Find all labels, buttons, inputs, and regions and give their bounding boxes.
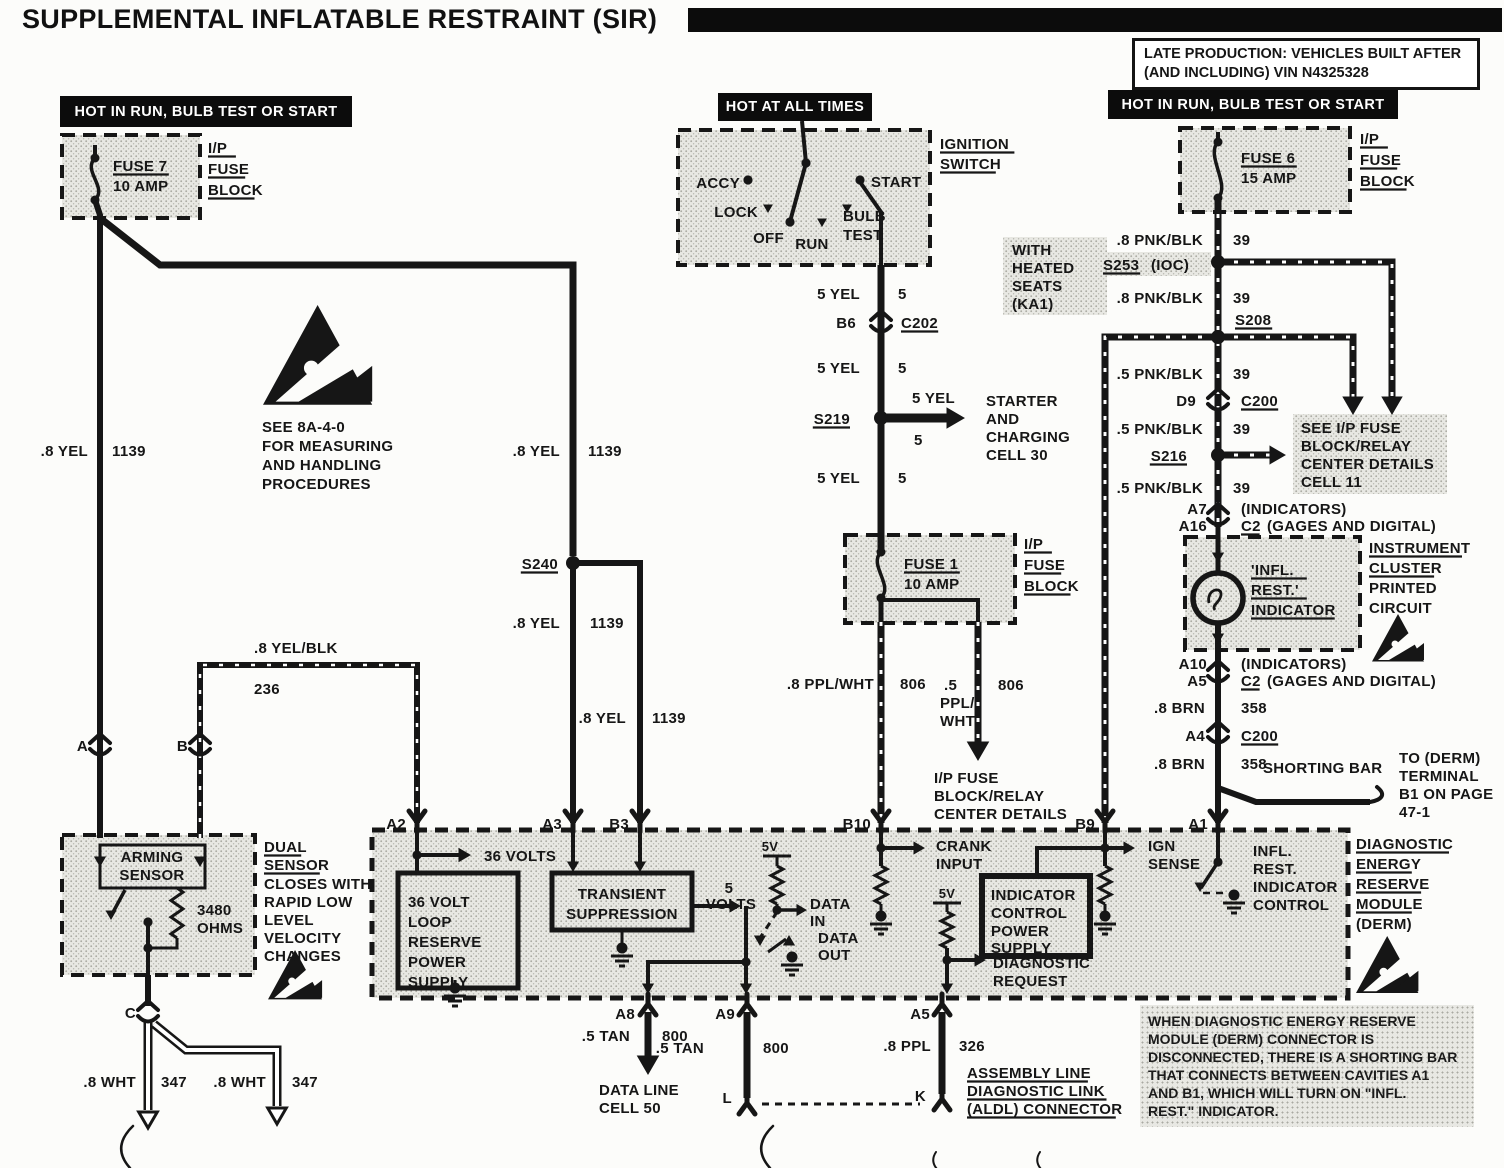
banner-hot-in-run-left: HOT IN RUN, BULB TEST OR START	[60, 96, 352, 127]
banner-hot-in-run-right: HOT IN RUN, BULB TEST OR START	[1108, 90, 1398, 119]
diagram-label: C	[125, 1005, 136, 1022]
diagram-label: SUPPRESSION	[566, 906, 678, 923]
diagram-label: RAPID LOW	[264, 894, 353, 911]
diagram-label: CRANK	[936, 838, 992, 855]
diagram-label: A5	[1187, 673, 1207, 690]
junction-dot	[1100, 843, 1109, 852]
diagram-label: 1139	[652, 710, 686, 727]
diagram-label: C2	[1241, 518, 1261, 535]
diagram-label: HEATED	[1012, 260, 1074, 277]
diagram-label: SHORTING BAR	[1263, 760, 1382, 777]
diagram-label: 5	[914, 432, 923, 449]
diagram-label: LOCK	[714, 204, 758, 221]
diagram-label: .8 PNK/BLK	[1117, 232, 1203, 249]
diagram-label: 236	[254, 681, 280, 698]
diagram-label: CONTROL	[991, 905, 1067, 922]
diagram-label: SWITCH	[940, 156, 1001, 173]
diagram-label: INPUT	[936, 856, 983, 873]
diagram-label: B3	[609, 816, 629, 833]
diagram-label: .8 YEL	[513, 615, 560, 632]
diagram-label: STARTER	[986, 393, 1058, 410]
diagram-label: C202	[901, 315, 938, 332]
diagram-label: SENSOR	[119, 867, 184, 884]
diagram-label: 326	[959, 1038, 985, 1055]
diagram-label: LOOP	[408, 914, 452, 931]
dashed-component-box	[62, 135, 200, 218]
diagram-label: REST.'	[1251, 582, 1299, 599]
diagram-label: AND	[986, 411, 1019, 428]
diagram-label: CIRCUIT	[1369, 600, 1432, 617]
diagram-label: 5	[898, 470, 907, 487]
diagram-label: 5 YEL	[912, 390, 955, 407]
diagram-label: OFF	[753, 230, 784, 247]
diagram-label: WHT	[940, 713, 975, 730]
diagram-label: TRANSIENT	[578, 886, 667, 903]
diagram-label: CHANGES	[264, 948, 341, 965]
diagram-label: (INDICATORS)	[1241, 656, 1347, 673]
diagram-label: (INDICATORS)	[1241, 501, 1347, 518]
diagram-label: CLUSTER	[1369, 560, 1442, 577]
diagram-label: .5 PNK/BLK	[1117, 421, 1203, 438]
diagram-label: D9	[1176, 393, 1196, 410]
diagram-label: ACCY	[696, 175, 740, 192]
diagram-label: 806	[998, 677, 1024, 694]
diagram-label: A4	[1185, 728, 1205, 745]
diagram-label: PPL/	[940, 695, 975, 712]
diagram-label: TEST	[843, 227, 883, 244]
diagram-label: S216	[1151, 448, 1187, 465]
diagram-label: CHARGING	[986, 429, 1070, 446]
diagram-label: (GAGES AND DIGITAL)	[1267, 518, 1436, 535]
diagram-label: FUSE	[208, 161, 249, 178]
diagram-label: I/P	[208, 140, 227, 157]
diagram-label: 5 YEL	[817, 286, 860, 303]
diagram-label: BLOCK	[208, 182, 263, 199]
diagram-label: S240	[522, 556, 558, 573]
diagram-label: DIAGNOSTIC	[993, 955, 1090, 972]
junction-dot	[143, 943, 152, 952]
diagram-label: .5 TAN	[582, 1028, 630, 1045]
diagram-part	[304, 361, 319, 376]
diagram-label: AND HANDLING	[262, 457, 381, 474]
diagram-label: DATA	[810, 896, 851, 913]
diagram-label: ASSEMBLY LINE	[967, 1065, 1091, 1082]
diagram-label: 39	[1233, 421, 1250, 438]
diagram-label: B6	[836, 315, 856, 332]
splice-dot	[874, 411, 888, 425]
diagram-label: A16	[1179, 518, 1207, 535]
diagram-label: (IOC)	[1151, 257, 1189, 274]
splice-dot	[1211, 255, 1225, 269]
diagram-label: .8 YEL	[579, 710, 626, 727]
diagram-label: 1139	[112, 443, 146, 460]
diagram-label: 5	[898, 286, 907, 303]
diagram-label: A5	[910, 1006, 930, 1023]
diagram-label: C2	[1241, 673, 1261, 690]
diagram-label: .5 PNK/BLK	[1117, 480, 1203, 497]
diagram-label: RESERVE	[408, 934, 482, 951]
diagram-label: .8 YEL	[513, 443, 560, 460]
diagram-label: INDICATOR	[1251, 602, 1336, 619]
diagram-part	[1100, 911, 1111, 922]
diagram-label: A2	[386, 816, 406, 833]
diagram-label: FUSE 6	[1241, 150, 1295, 167]
diagram-label: A8	[615, 1006, 635, 1023]
diagram-label: FUSE	[1360, 152, 1401, 169]
diagram-label: DATA	[818, 930, 859, 947]
diagram-label: 1139	[590, 615, 624, 632]
diagram-label: 1139	[588, 443, 622, 460]
diagram-label: BLOCK	[1360, 173, 1415, 190]
diagram-part	[1392, 641, 1399, 648]
diagram-label: B9	[1075, 816, 1095, 833]
diagram-label: OHMS	[197, 920, 243, 937]
junction-dot	[143, 917, 152, 926]
diagram-label: S219	[814, 411, 850, 428]
diagram-label: I/P FUSE	[934, 770, 999, 787]
diagram-label: 347	[161, 1074, 187, 1091]
diagram-label: A3	[542, 816, 562, 833]
banner-hot-at-all-times: HOT AT ALL TIMES	[718, 93, 872, 121]
diagram-part	[288, 978, 295, 985]
diagram-label: 358	[1241, 700, 1267, 717]
diagram-label: CELL 50	[599, 1100, 661, 1117]
diagram-label: CELL 30	[986, 447, 1048, 464]
diagram-label: DATA LINE	[599, 1082, 679, 1099]
diagram-label: WITH	[1012, 242, 1052, 259]
diagram-part	[1379, 968, 1387, 976]
diagram-label: PROCEDURES	[262, 476, 371, 493]
diagram-label: (DERM)	[1356, 916, 1412, 933]
diagram-label: 3480	[197, 902, 232, 919]
derm-shorting-bar-note: WHEN DIAGNOSTIC ENERGY RESERVE MODULE (D…	[1140, 1005, 1474, 1127]
diagram-part	[787, 952, 798, 963]
diagram-label: SEE I/P FUSE	[1301, 420, 1401, 437]
diagram-label: FUSE 1	[904, 556, 958, 573]
diagram-label: B	[177, 738, 188, 755]
diagram-label: DIAGNOSTIC	[1356, 836, 1453, 853]
diagram-label: INDICATOR	[1253, 879, 1338, 896]
diagram-label: 800	[763, 1040, 789, 1057]
diagram-label: 5V	[762, 839, 779, 854]
splice-dot	[566, 556, 580, 570]
diagram-label: .8 WHT	[213, 1074, 266, 1091]
junction-dot	[741, 957, 750, 966]
diagram-part	[876, 911, 887, 922]
diagram-label: POWER	[991, 923, 1049, 940]
diagram-label: S253	[1103, 257, 1139, 274]
diagram-label: 36 VOLT	[408, 894, 470, 911]
diagram-label: .5	[944, 677, 957, 694]
diagram-label: 39	[1233, 366, 1250, 383]
diagram-label: ARMING	[121, 849, 184, 866]
splice-dot	[1211, 330, 1225, 344]
diagram-label: CONTROL	[1253, 897, 1329, 914]
diagram-label: (GAGES AND DIGITAL)	[1267, 673, 1436, 690]
diagram-label: .8 PPL	[883, 1038, 931, 1055]
diagram-label: FUSE	[1024, 557, 1065, 574]
diagram-label: DUAL	[264, 839, 307, 856]
junction-dot	[412, 850, 421, 859]
diagram-label: POWER	[408, 954, 466, 971]
diagram-label: S208	[1235, 312, 1271, 329]
diagram-label: TO (DERM)	[1399, 750, 1481, 767]
junction-dot	[942, 955, 951, 964]
splice-dot	[1211, 448, 1225, 462]
diagram-label: VELOCITY	[264, 930, 341, 947]
diagram-label: L	[723, 1090, 732, 1107]
diagram-label: .8 YEL	[41, 443, 88, 460]
late-production-note: LATE PRODUCTION: VEHICLES BUILT AFTER (A…	[1132, 38, 1480, 90]
diagram-label: BLOCK	[1024, 578, 1079, 595]
diagram-label: CENTER DETAILS	[934, 806, 1067, 823]
diagram-label: .8 PPL/WHT	[787, 676, 874, 693]
diagram-label: SUPPLY	[408, 974, 468, 991]
junction-dot	[801, 158, 810, 167]
diagram-label: SENSOR	[264, 857, 329, 874]
diagram-label: BLOCK/RELAY	[934, 788, 1044, 805]
diagram-label: 39	[1233, 232, 1250, 249]
page: FUSE 710 AMPI/PFUSEBLOCK.8 YEL1139SEE 8A…	[0, 0, 1504, 1168]
diagram-label: 10 AMP	[904, 576, 959, 593]
diagram-part	[1229, 890, 1240, 901]
diagram-label: I/P	[1360, 131, 1379, 148]
diagram-label: A1	[1188, 816, 1208, 833]
diagram-label: DIAGNOSTIC LINK	[967, 1083, 1105, 1100]
diagram-label: VOLTS	[706, 896, 756, 913]
diagram-label: .8 BRN	[1154, 756, 1205, 773]
diagram-label: A7	[1187, 501, 1207, 518]
diagram-label: SENSE	[1148, 856, 1200, 873]
diagram-label: SUPPLY	[991, 940, 1051, 957]
diagram-label: TERMINAL	[1399, 768, 1479, 785]
diagram-label: C200	[1241, 393, 1278, 410]
diagram-label: (KA1)	[1012, 296, 1054, 313]
diagram-label: 39	[1233, 480, 1250, 497]
diagram-label: 'INFL.	[1251, 562, 1294, 579]
diagram-label: A9	[715, 1006, 735, 1023]
junction-dot	[855, 175, 864, 184]
diagram-label: LEVEL	[264, 912, 314, 929]
diagram-label: REQUEST	[993, 973, 1068, 990]
diagram-label: INSTRUMENT	[1369, 540, 1470, 557]
diagram-label: IGN	[1148, 838, 1176, 855]
diagram-label: 5	[898, 360, 907, 377]
diagram-label: SEE 8A-4-0	[262, 419, 345, 436]
diagram-label: .5 TAN	[656, 1040, 704, 1057]
diagram-label: INFL.	[1253, 843, 1292, 860]
page-title: SUPPLEMENTAL INFLATABLE RESTRAINT (SIR)	[22, 4, 657, 35]
diagram-label: RESERVE	[1356, 876, 1430, 893]
diagram-label: B1 ON PAGE	[1399, 786, 1493, 803]
diagram-label: .8 BRN	[1154, 700, 1205, 717]
junction-dot	[743, 175, 752, 184]
diagram-label: BLOCK/RELAY	[1301, 438, 1411, 455]
diagram-label: 5	[725, 880, 734, 897]
wiring-diagram: FUSE 710 AMPI/PFUSEBLOCK.8 YEL1139SEE 8A…	[0, 0, 1504, 1168]
diagram-label: FOR MEASURING	[262, 438, 393, 455]
diagram-label: PRINTED	[1369, 580, 1437, 597]
diagram-label: K	[915, 1088, 926, 1105]
diagram-label: .8 YEL/BLK	[254, 640, 338, 657]
diagram-label: 10 AMP	[113, 178, 168, 195]
top-black-bar	[688, 8, 1502, 32]
diagram-label: REST.	[1253, 861, 1297, 878]
diagram-label: SEATS	[1012, 278, 1062, 295]
diagram-label: CENTER DETAILS	[1301, 456, 1434, 473]
diagram-label: RUN	[795, 236, 828, 253]
diagram-label: INDICATOR	[991, 887, 1076, 904]
diagram-label: A10	[1179, 656, 1207, 673]
diagram-label: MODULE	[1356, 896, 1423, 913]
diagram-label: IN	[810, 913, 826, 930]
diagram-label: CELL 11	[1301, 474, 1362, 491]
diagram-label: START	[871, 174, 921, 191]
diagram-label: FUSE 7	[113, 158, 167, 175]
diagram-label: BULB	[843, 208, 886, 225]
diagram-label: IGNITION	[940, 136, 1009, 153]
junction-dot	[876, 843, 885, 852]
junction-dot	[785, 217, 794, 226]
diagram-label: .8 WHT	[83, 1074, 136, 1091]
diagram-label: 39	[1233, 290, 1250, 307]
diagram-label: OUT	[818, 947, 851, 964]
diagram-label: 15 AMP	[1241, 170, 1296, 187]
junction-dot	[1213, 857, 1222, 866]
diagram-part	[617, 943, 628, 954]
junction-dot	[772, 905, 781, 914]
diagram-label: CLOSES WITH	[264, 876, 371, 893]
diagram-label: 47-1	[1399, 804, 1430, 821]
diagram-label: 806	[900, 676, 926, 693]
diagram-label: (ALDL) CONNECTOR	[967, 1101, 1122, 1118]
diagram-label: 5V	[939, 886, 956, 901]
diagram-label: 5 YEL	[817, 360, 860, 377]
diagram-label: B10	[843, 816, 871, 833]
diagram-label: ENERGY	[1356, 856, 1421, 873]
diagram-label: .5 PNK/BLK	[1117, 366, 1203, 383]
diagram-label: 347	[292, 1074, 318, 1091]
diagram-label: 5 YEL	[817, 470, 860, 487]
diagram-label: C200	[1241, 728, 1278, 745]
diagram-label: 36 VOLTS	[484, 848, 556, 865]
diagram-label: .8 PNK/BLK	[1117, 290, 1203, 307]
diagram-label: I/P	[1024, 536, 1043, 553]
diagram-label: A	[77, 738, 88, 755]
